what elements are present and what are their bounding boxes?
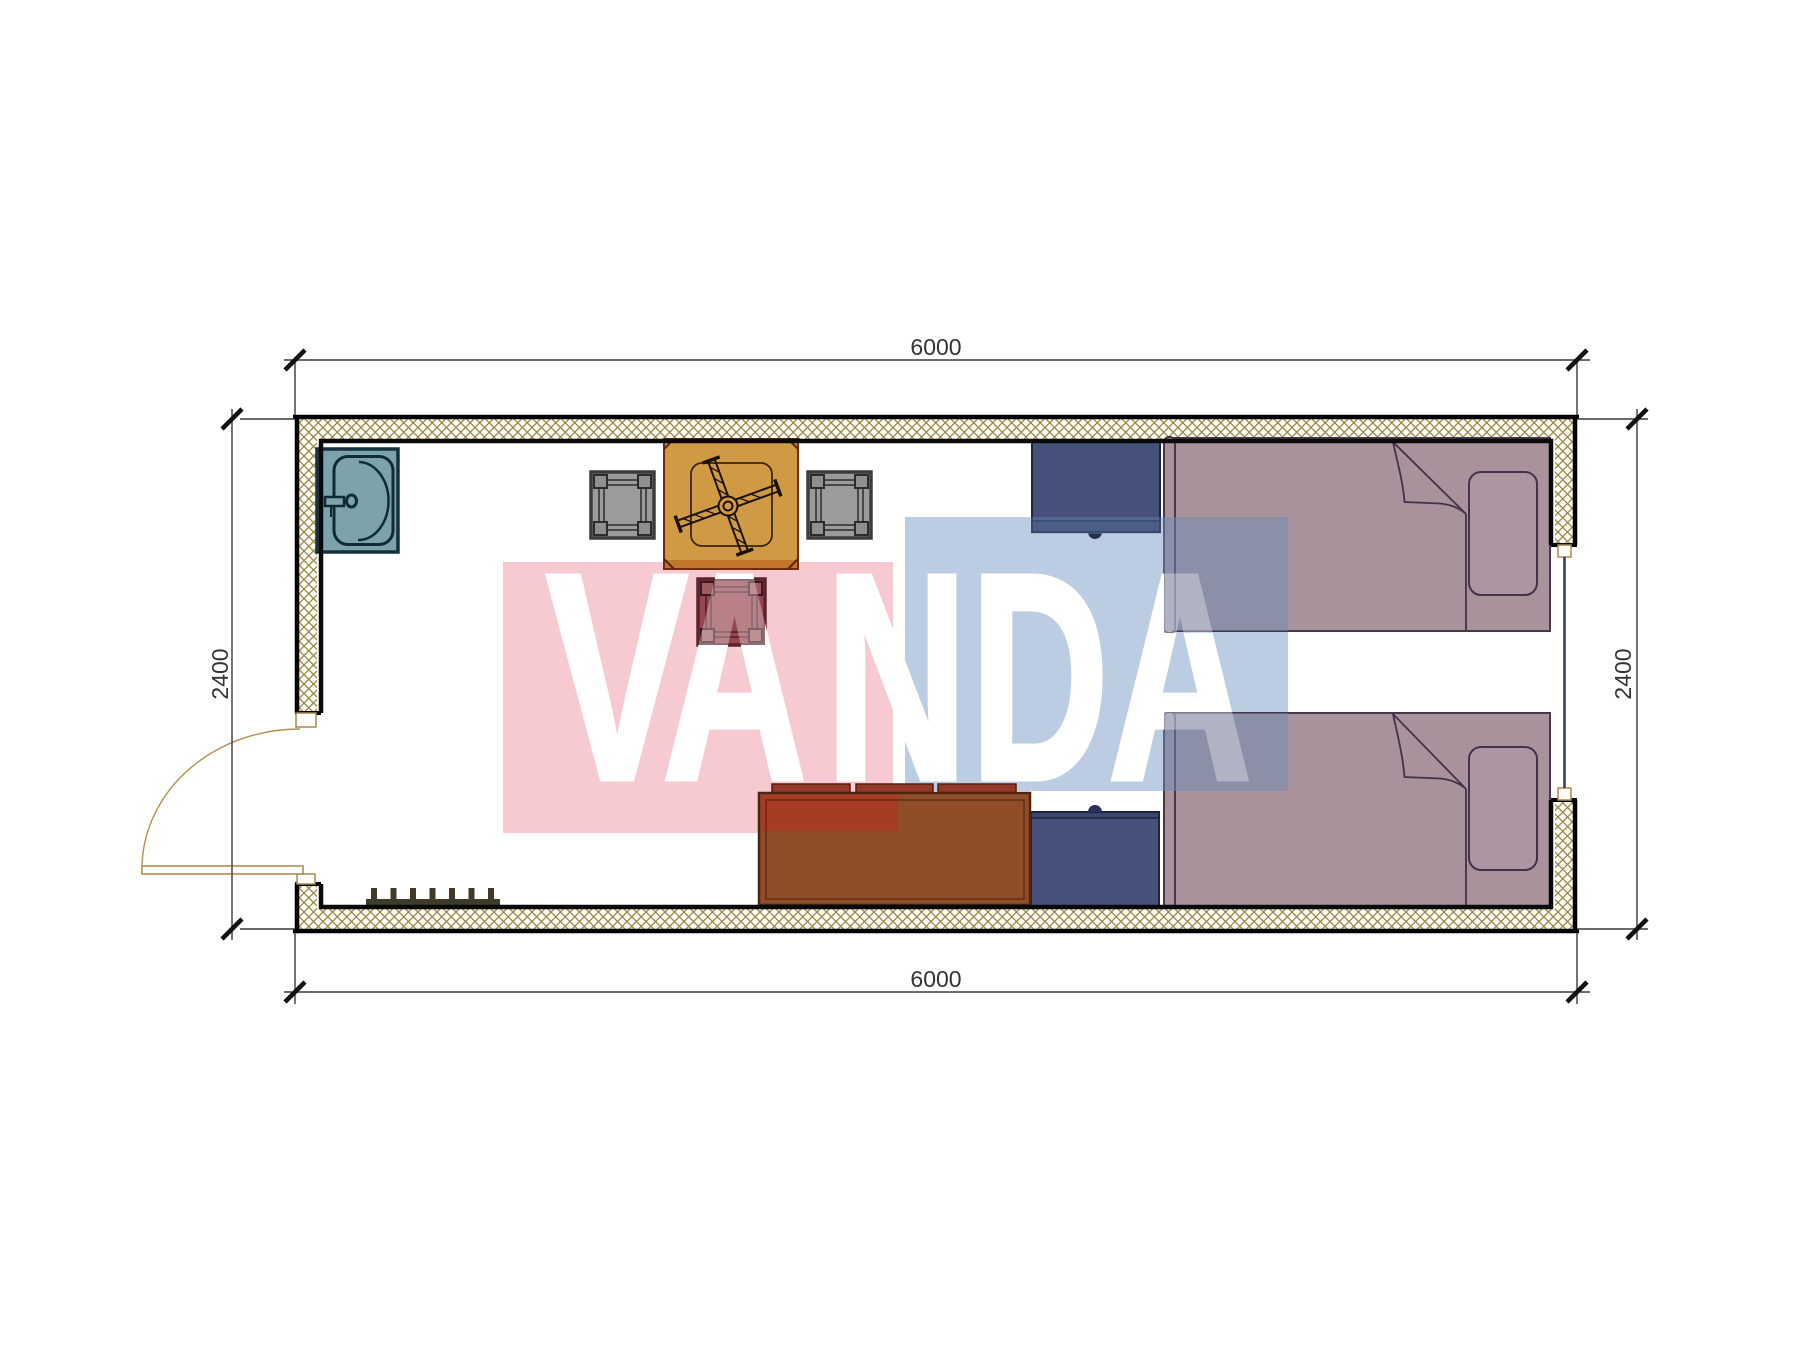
svg-text:2400: 2400 bbox=[207, 648, 233, 699]
svg-text:6000: 6000 bbox=[910, 966, 961, 992]
svg-text:N: N bbox=[825, 512, 968, 842]
svg-text:D: D bbox=[970, 512, 1109, 842]
svg-text:2400: 2400 bbox=[1610, 648, 1636, 699]
svg-text:A: A bbox=[1108, 512, 1252, 842]
svg-text:6000: 6000 bbox=[910, 334, 961, 360]
svg-text:A: A bbox=[662, 512, 807, 842]
